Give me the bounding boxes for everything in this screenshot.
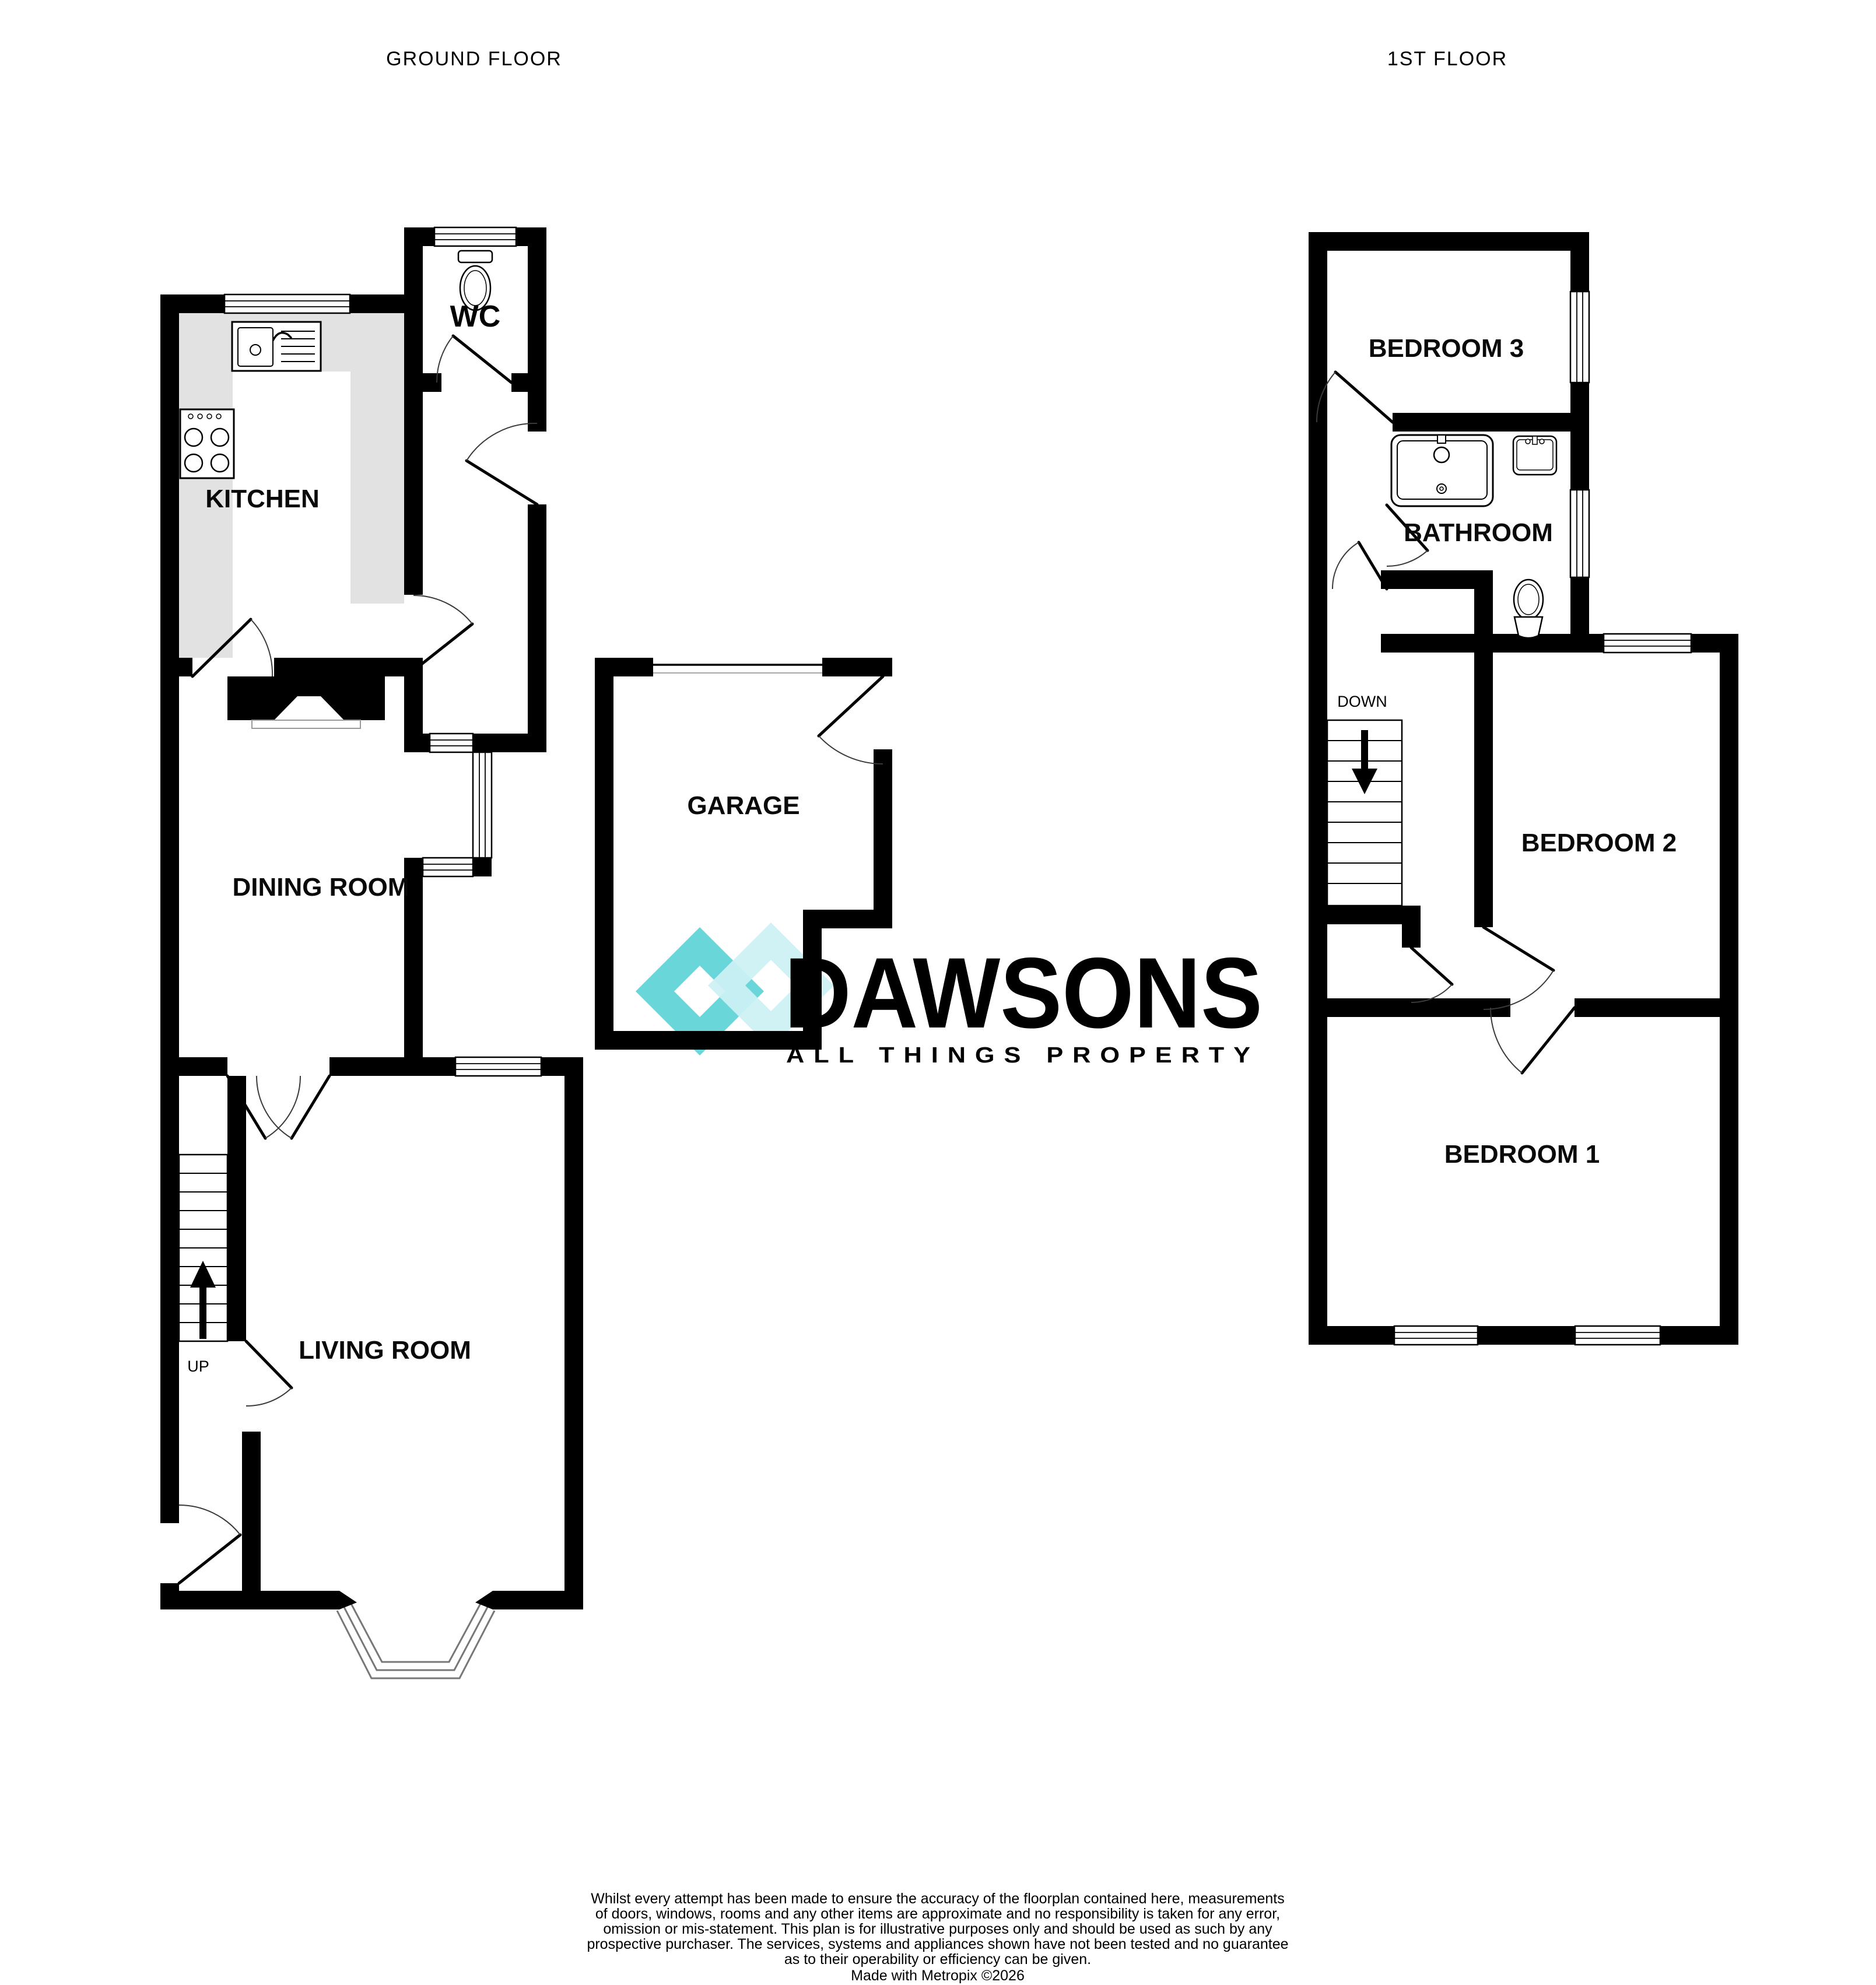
stove-icon <box>180 409 234 478</box>
lobby-window <box>430 734 473 752</box>
kitchen-window <box>225 294 350 313</box>
disclaimer-line: Whilst every attempt has been made to en… <box>591 1891 1285 1907</box>
bedroom1-window-left <box>1394 1326 1478 1345</box>
basin-icon <box>1513 436 1556 475</box>
stairs-down <box>1327 720 1402 906</box>
dining-bay-window-side <box>473 752 492 858</box>
window <box>1575 1326 1660 1345</box>
disclaimer-line: omission or mis-statement. This plan is … <box>603 1921 1272 1937</box>
window <box>455 1057 541 1076</box>
bathtub-icon <box>1391 435 1493 506</box>
garage-label: GARAGE <box>687 791 800 820</box>
window <box>1394 1326 1478 1345</box>
tub-faucet <box>1434 447 1449 462</box>
hearth <box>252 720 360 728</box>
living-room-label: LIVING ROOM <box>299 1336 471 1365</box>
bedroom1-label: BEDROOM 1 <box>1444 1140 1600 1169</box>
living-room-window <box>455 1057 541 1076</box>
dining-room-label: DINING ROOM <box>232 873 409 902</box>
window <box>473 752 492 858</box>
window <box>434 227 516 246</box>
floorplan-page: GROUND FLOOR 1ST FLOOR DAWSONS ALL THING… <box>0 0 1876 1985</box>
counter-right <box>350 371 404 604</box>
sink-drain <box>250 345 261 355</box>
wc-window <box>434 227 516 246</box>
dining-bay-window-bottom <box>423 858 473 876</box>
bathroom-toilet-icon <box>1514 580 1543 638</box>
wc-label: WC <box>450 300 501 334</box>
bedroom3-label: BEDROOM 3 <box>1369 334 1524 363</box>
window <box>1570 292 1589 383</box>
window <box>225 294 350 313</box>
disclaimer-line: of doors, windows, rooms and any other i… <box>595 1906 1280 1922</box>
logo-tagline: ALL THINGS PROPERTY <box>786 1043 1260 1068</box>
up-arrow-shaft <box>199 1286 206 1339</box>
bathroom-label: BATHROOM <box>1404 518 1553 547</box>
bedroom1-window-right <box>1575 1326 1660 1345</box>
window <box>423 858 473 876</box>
down-arrow-shaft <box>1361 730 1368 770</box>
toilet-base <box>1514 617 1542 638</box>
toilet-cistern <box>458 251 492 262</box>
bedroom2-window <box>1604 634 1691 653</box>
window <box>430 734 473 752</box>
basin-tap <box>1540 439 1544 444</box>
ground-floor-title: GROUND FLOOR <box>386 48 562 70</box>
window <box>1604 634 1691 653</box>
basin-spout <box>1533 436 1537 444</box>
basin-tap <box>1526 439 1530 444</box>
window <box>1570 490 1589 577</box>
first-floor-title: 1ST FLOOR <box>1387 48 1507 70</box>
kitchen-sink-icon <box>232 322 321 371</box>
tub-outer <box>1391 435 1493 506</box>
stairs-up <box>179 1155 227 1341</box>
disclaimer-line: as to their operability or efficiency ca… <box>784 1951 1091 1968</box>
up-label: UP <box>187 1358 209 1375</box>
floorplan-canvas: GROUND FLOOR 1ST FLOOR DAWSONS ALL THING… <box>0 0 1876 1985</box>
down-label: DOWN <box>1337 693 1387 710</box>
credit-line: Made with Metropix ©2026 <box>851 1968 1025 1984</box>
kitchen-label: KITCHEN <box>205 485 320 513</box>
bedroom2-label: BEDROOM 2 <box>1521 829 1677 857</box>
tub-tap-stem <box>1437 435 1446 443</box>
bedroom3-window <box>1570 292 1589 383</box>
logo-brand-name: DAWSONS <box>784 937 1263 1049</box>
disclaimer-line: prospective purchaser. The services, sys… <box>587 1936 1288 1952</box>
bathroom-window <box>1570 490 1589 577</box>
